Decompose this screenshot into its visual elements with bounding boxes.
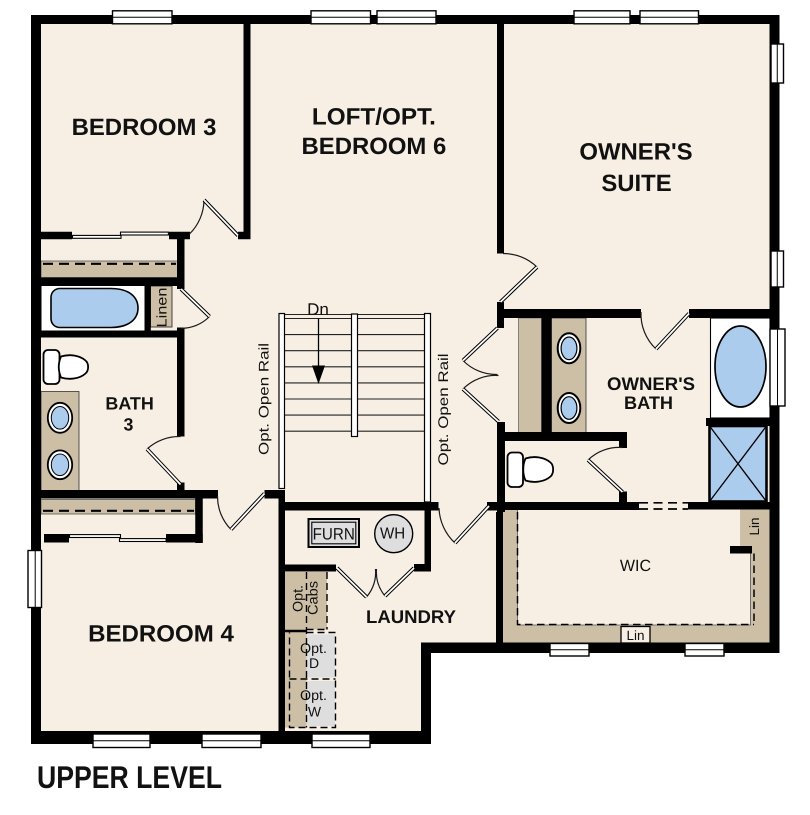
svg-text:W: W [308, 704, 322, 720]
svg-text:Lin: Lin [626, 628, 644, 643]
svg-text:OWNER'S: OWNER'S [607, 374, 695, 394]
svg-text:BATH: BATH [624, 393, 673, 413]
svg-text:UPPER LEVEL: UPPER LEVEL [37, 759, 222, 795]
svg-text:Linen: Linen [154, 288, 170, 328]
svg-text:BATH: BATH [105, 393, 153, 413]
svg-text:3: 3 [124, 415, 134, 435]
svg-text:FURN: FURN [313, 525, 355, 543]
svg-text:BEDROOM 6: BEDROOM 6 [302, 134, 447, 160]
svg-text:Opt. Open Rail: Opt. Open Rail [435, 354, 451, 466]
svg-text:Cabs: Cabs [305, 581, 321, 615]
svg-text:Opt.: Opt. [300, 640, 327, 656]
svg-text:Lin: Lin [747, 517, 762, 535]
svg-text:Opt.: Opt. [290, 585, 306, 612]
svg-text:WIC: WIC [620, 557, 651, 575]
svg-text:WH: WH [380, 526, 405, 543]
svg-text:LAUNDRY: LAUNDRY [366, 606, 456, 627]
svg-text:BEDROOM 4: BEDROOM 4 [88, 621, 235, 647]
svg-text:OWNER'S: OWNER'S [579, 139, 692, 165]
svg-text:D: D [309, 655, 319, 671]
svg-text:SUITE: SUITE [601, 171, 671, 197]
svg-text:BEDROOM 3: BEDROOM 3 [72, 115, 217, 141]
svg-text:Opt. Open Rail: Opt. Open Rail [256, 343, 272, 455]
svg-text:Opt.: Opt. [300, 687, 327, 703]
svg-text:LOFT/OPT.: LOFT/OPT. [312, 104, 436, 130]
svg-text:Dn: Dn [307, 300, 329, 319]
